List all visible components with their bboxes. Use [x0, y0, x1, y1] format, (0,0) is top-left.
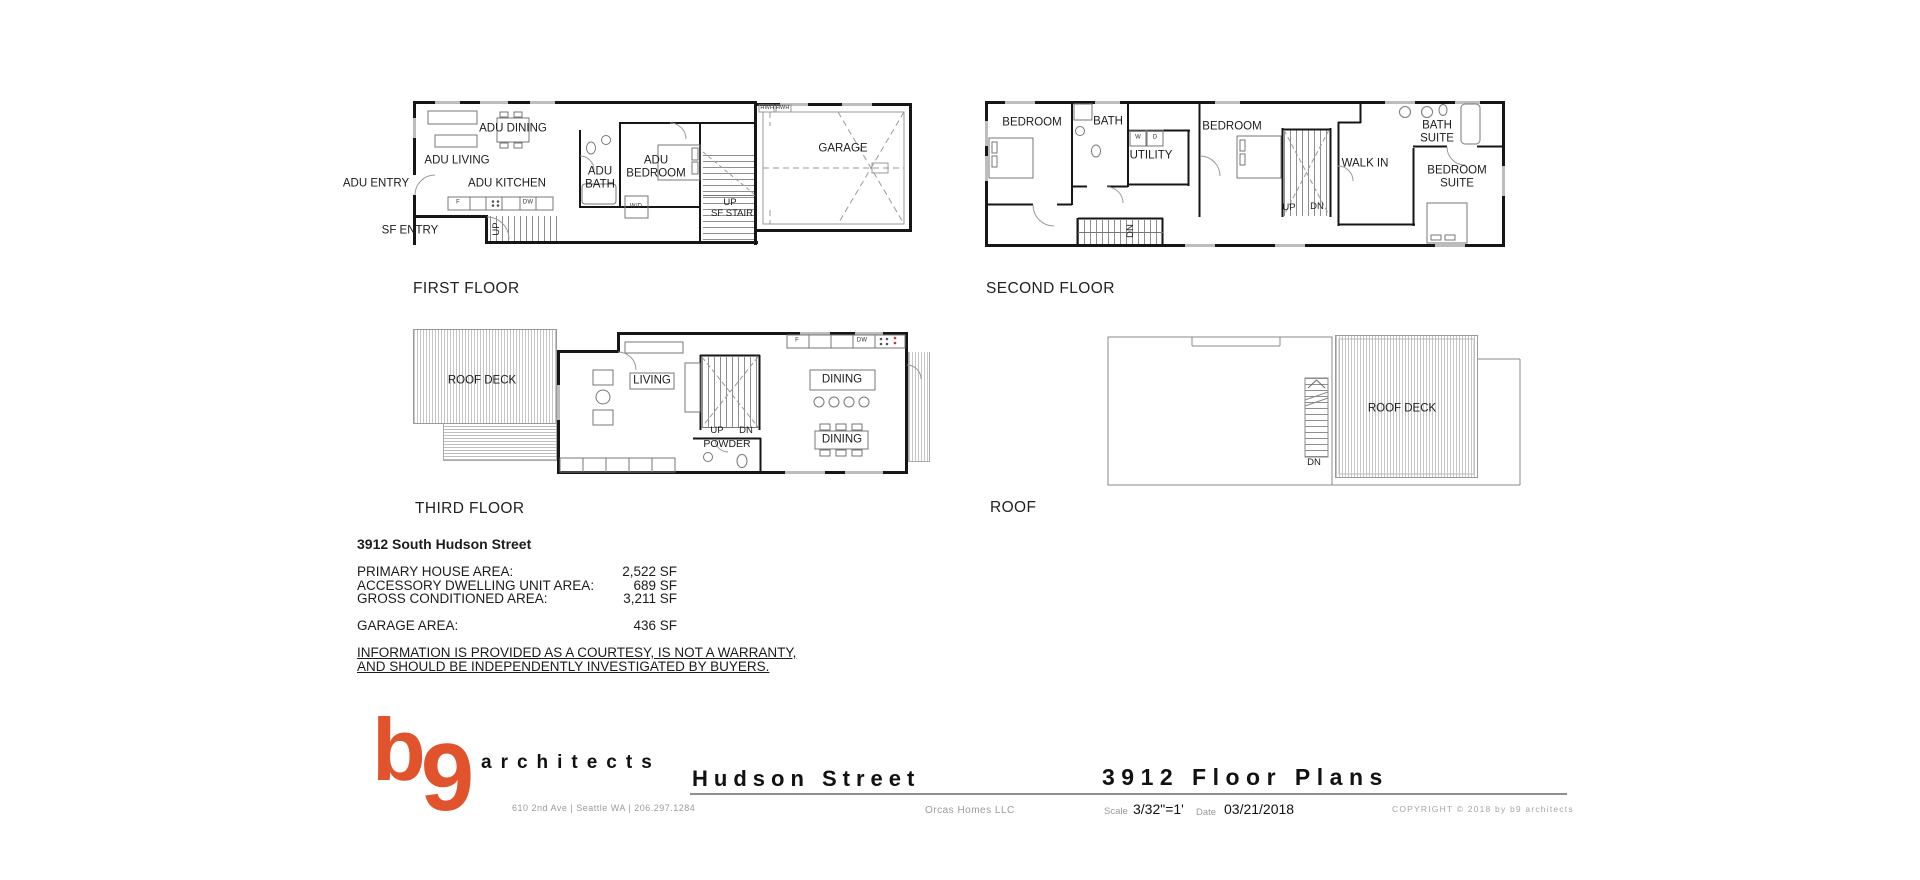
- room-label-walk-in: WALK IN: [1342, 158, 1389, 171]
- room-label-sf-entry: SF ENTRY: [382, 225, 439, 238]
- stair-label-up: UP: [492, 222, 502, 235]
- fridge-label: F: [456, 200, 460, 207]
- range-accents: [894, 337, 897, 345]
- copyright-text: COPYRIGHT © 2018 by b9 architects: [1392, 804, 1574, 814]
- interior-walls: [693, 355, 761, 473]
- stair-label-sf-up: UP: [723, 198, 736, 208]
- fridge-label: F: [795, 338, 799, 345]
- room-label-bedroom-left: BEDROOM: [1002, 117, 1061, 130]
- room-label-adu-entry: ADU ENTRY: [343, 178, 409, 191]
- summary-row-label: ACCESSORY DWELLING UNIT AREA:: [357, 579, 597, 593]
- room-label-bedroom-mid: BEDROOM: [1202, 121, 1261, 134]
- stair-label-dn: DN: [1310, 202, 1324, 212]
- first-floor-plan: ADU ENTRY SF ENTRY ADU LIVING ADU DINING…: [340, 96, 920, 256]
- wd-label: W/D: [630, 204, 642, 211]
- firm-name: architects: [481, 752, 661, 774]
- disclaimer: INFORMATION IS PROVIDED AS A COURTESY, I…: [357, 646, 827, 674]
- stair-label-up: UP: [1282, 203, 1295, 213]
- stair-arrow: [1308, 380, 1325, 388]
- summary-address: 3912 South Hudson Street: [357, 536, 677, 552]
- room-label-bath: BATH: [1093, 116, 1123, 129]
- hwh-label: HWH HWH: [760, 105, 789, 111]
- third-floor-plan: ROOF DECK LIVING DINING DINING UP DN POW…: [405, 325, 945, 490]
- room-label-adu-kitchen: ADU KITCHEN: [468, 178, 546, 191]
- room-label-powder: POWDER: [703, 439, 750, 451]
- dw-label: DW: [857, 338, 867, 345]
- caption-third-floor: THIRD FLOOR: [415, 500, 524, 518]
- exterior-walls: [557, 332, 908, 474]
- stair-label-dn: DN: [739, 426, 753, 436]
- caption-first-floor: FIRST FLOOR: [413, 280, 520, 298]
- room-label-dining-table: DINING: [822, 434, 862, 447]
- room-label-dining-island: DINING: [822, 374, 862, 387]
- room-label-bath-suite: BATH SUITE: [1415, 119, 1459, 144]
- b9-logo: b9: [372, 700, 474, 796]
- date-value: 03/21/2018: [1224, 801, 1294, 817]
- room-label-roof-deck: ROOF DECK: [448, 375, 516, 388]
- room-label-adu-living: ADU LIVING: [424, 155, 489, 168]
- stair-label-dn-vertical: DN: [1126, 224, 1136, 238]
- disclaimer-line: AND SHOULD BE INDEPENDENTLY INVESTIGATED…: [357, 660, 827, 674]
- summary-row-value: 436 SF: [597, 619, 677, 633]
- summary-row-value: 2,522 SF: [597, 565, 677, 579]
- logo-digit-9: 9: [421, 724, 474, 831]
- second-floor-plan: BEDROOM BATH UTILITY BEDROOM WALK IN BAT…: [975, 96, 1520, 256]
- door-swings: [618, 352, 921, 452]
- third-floor-linework: [405, 325, 945, 490]
- stair-label-up: UP: [710, 426, 723, 436]
- scale-label: Scale: [1104, 806, 1128, 817]
- room-label-garage: GARAGE: [818, 143, 867, 156]
- summary-row-label: PRIMARY HOUSE AREA:: [357, 565, 597, 579]
- caption-roof: ROOF: [990, 499, 1036, 517]
- room-label-adu-bedroom: ADU BEDROOM: [624, 154, 688, 179]
- range-burners: [492, 200, 500, 207]
- room-label-adu-bath: ADU BATH: [580, 165, 620, 190]
- summary-row-garage: GARAGE AREA: 436 SF: [357, 619, 677, 633]
- garage-marks: [759, 105, 904, 224]
- summary-row: PRIMARY HOUSE AREA: 2,522 SF: [357, 565, 677, 579]
- sheet-title: 3912 Floor Plans: [1102, 764, 1389, 791]
- summary-row-label: GROSS CONDITIONED AREA:: [357, 592, 597, 606]
- dryer-label: D: [1153, 135, 1158, 142]
- summary-row-value: 3,211 SF: [597, 592, 677, 606]
- summary-row-label: GARAGE AREA:: [357, 619, 597, 633]
- firm-address: 610 2nd Ave | Seattle WA | 206.297.1284: [512, 803, 695, 813]
- disclaimer-line: INFORMATION IS PROVIDED AS A COURTESY, I…: [357, 646, 827, 660]
- summary-row-value: 689 SF: [597, 579, 677, 593]
- client-name: Orcas Homes LLC: [925, 805, 1015, 816]
- summary-row: ACCESSORY DWELLING UNIT AREA: 689 SF: [357, 579, 677, 593]
- room-label-adu-dining: ADU DINING: [479, 123, 547, 136]
- range-burners: [880, 338, 889, 346]
- dw-label: DW: [523, 200, 533, 207]
- summary-row: GROSS CONDITIONED AREA: 3,211 SF: [357, 592, 677, 606]
- stair-label-sf-stair: SF STAIR: [711, 209, 753, 219]
- titleblock-rule: [690, 793, 1567, 795]
- roof-plan: ROOF DECK DN: [1100, 330, 1530, 490]
- room-label-roof-deck: ROOF DECK: [1368, 403, 1436, 416]
- room-label-living: LIVING: [633, 375, 671, 388]
- room-label-utility: UTILITY: [1130, 150, 1173, 163]
- stair-x-marks: [702, 357, 758, 427]
- project-name: Hudson Street: [692, 766, 920, 792]
- logo-letter-b: b: [372, 700, 426, 799]
- door-swings: [1033, 147, 1465, 226]
- date-label: Date: [1196, 807, 1216, 818]
- washer-label: W: [1135, 135, 1141, 142]
- area-summary: 3912 South Hudson Street PRIMARY HOUSE A…: [357, 536, 677, 632]
- stair-label-dn: DN: [1307, 458, 1321, 468]
- floor-plan-sheet: ADU ENTRY SF ENTRY ADU LIVING ADU DINING…: [0, 0, 1920, 880]
- caption-second-floor: SECOND FLOOR: [986, 280, 1115, 298]
- scale-value: 3/32"=1': [1133, 801, 1184, 817]
- room-label-bedroom-suite: BEDROOM SUITE: [1424, 164, 1490, 189]
